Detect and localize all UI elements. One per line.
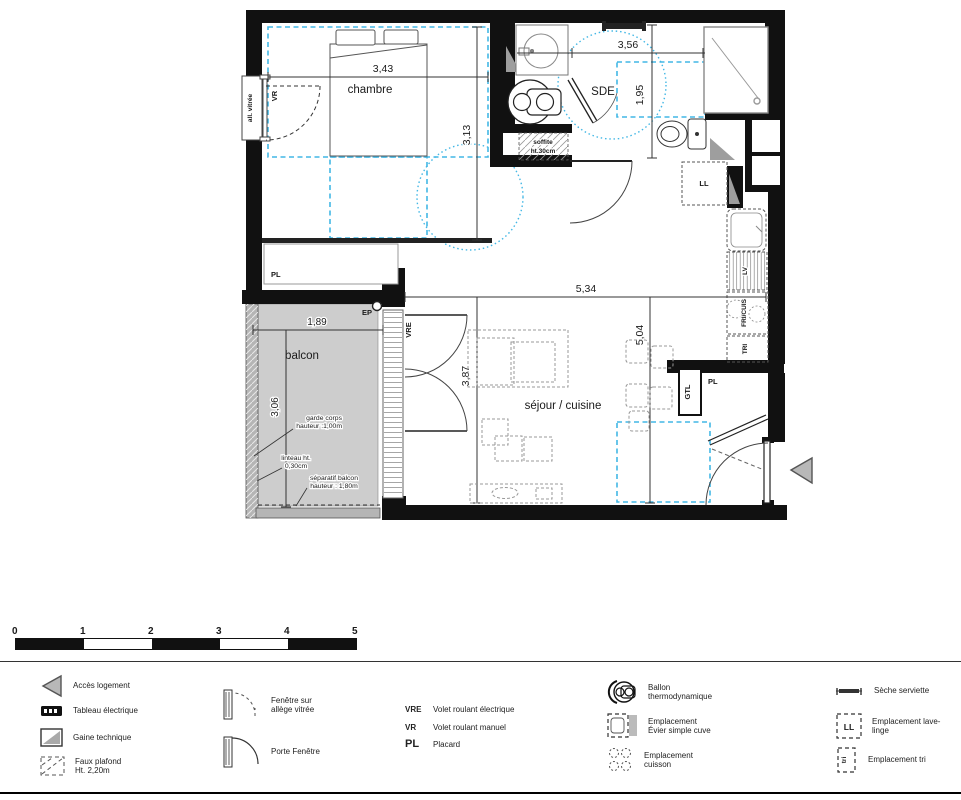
legend-ballon-label-2: thermodynamique — [648, 692, 712, 702]
sejour-label: séjour / cuisine — [525, 400, 602, 412]
legend-item-tableau: Tableau électrique — [40, 703, 138, 719]
legend-faux-plafond-label-1: Faux plafond — [75, 757, 121, 767]
shower — [704, 27, 768, 113]
fri-cuis-label: FRI/CUIS — [741, 298, 748, 326]
gtl-box: GTL — [679, 369, 701, 415]
dim-chambre-width: 3,43 — [373, 63, 394, 75]
tri-label: TRI — [742, 344, 749, 355]
legend-acces-label: Accès logement — [73, 681, 130, 690]
dim-sejour-width: 5,34 — [576, 283, 597, 295]
legend-gaine-label: Gaine technique — [73, 733, 131, 742]
legend-cuisson-label-2: cuisson — [644, 760, 693, 770]
dim-sde-height: 1,95 — [634, 85, 646, 106]
scale-tick-3: 3 — [216, 626, 222, 637]
entry-door — [706, 415, 770, 505]
dim-sde-width: 3,56 — [618, 39, 639, 51]
balcon-label: balcon — [285, 350, 319, 362]
sde-label: SDE — [591, 86, 615, 98]
dim-lines-sejour — [405, 292, 766, 503]
legend-item-faux-plafond: Faux plafond Ht. 2,20m — [40, 755, 121, 777]
legend-fenetre-label-2: allège vitrée — [271, 705, 314, 715]
legend-item-vr: VR Volet roulant manuel — [405, 723, 506, 732]
vre-label: VRE — [404, 322, 413, 337]
scale-tick-0: 0 — [12, 626, 18, 637]
seche-serviette-icon — [835, 684, 865, 698]
legend-vre-def: Volet roulant électrique — [433, 705, 514, 714]
legend-vr-def: Volet roulant manuel — [433, 723, 506, 732]
scale-tick-5: 5 — [352, 626, 358, 637]
linteau-label-1: linteau ht. — [281, 455, 311, 462]
pl-chambre-label: PL — [271, 270, 281, 279]
legend-item-seche: Sèche serviette — [835, 684, 929, 698]
separatif-label-2: hauteur : 1,80m — [310, 483, 358, 490]
placard-chambre — [264, 244, 398, 284]
scale-bar: 0 1 2 3 4 5 — [15, 626, 356, 652]
vre-window — [383, 310, 467, 498]
legend-lave-linge-label-1: Emplacement lave- — [872, 717, 940, 727]
dim-sejour-height: 5,04 — [634, 325, 646, 346]
scale-tick-2: 2 — [148, 626, 154, 637]
allege-vitree-label: all. vitrée — [247, 94, 254, 123]
evier-icon — [607, 712, 639, 740]
legend-item-pl: PL Placard — [405, 738, 460, 750]
pl-entree-label: PL — [708, 377, 718, 386]
legend-fenetre-label-1: Fenêtre sur — [271, 696, 314, 706]
legend-ballon-label-1: Ballon — [648, 683, 712, 693]
legend-seche-label: Sèche serviette — [874, 686, 929, 695]
legend-vr-abbr: VR — [405, 723, 433, 732]
floor-plan-drawing: all. vitrée VR chambre 3,43 3,13 PL — [0, 0, 961, 620]
legend-item-acces: Accès logement — [40, 673, 130, 699]
cuisson-icon — [607, 746, 635, 774]
legend-evier-label-1: Emplacement — [648, 717, 711, 727]
porte-fenetre-icon — [222, 735, 262, 769]
tri-icon-label: tri — [841, 757, 848, 764]
gtl-label: GTL — [683, 384, 692, 399]
legend-item-ballon: Ballon thermodynamique — [607, 678, 712, 706]
chambre-door — [570, 161, 632, 223]
tri-zone: TRI — [727, 336, 768, 362]
sejour-furniture — [468, 330, 673, 503]
tri-icon: tri — [835, 746, 859, 774]
toilet — [657, 119, 706, 149]
soffite-label-2: ht.30cm — [531, 148, 556, 155]
floor-plan-page: all. vitrée VR chambre 3,43 3,13 PL — [0, 0, 961, 800]
lv-label: LV — [742, 266, 749, 274]
vr-label: VR — [270, 90, 279, 101]
separatif-label-1: séparatif balcon — [310, 475, 358, 482]
legend-evier-label-2: Évier simple cuve — [648, 726, 711, 736]
ll-label: LL — [699, 179, 709, 188]
legend-tableau-label: Tableau électrique — [73, 706, 138, 715]
scale-bar-segments — [15, 638, 357, 650]
tableau-electrique-icon — [40, 703, 64, 719]
soffite-label-1: soffite — [533, 139, 553, 146]
sde-door — [568, 78, 617, 123]
page-bottom-border — [0, 792, 961, 794]
ballon-thermodynamique — [508, 80, 561, 124]
legend-item-cuisson: Emplacement cuisson — [607, 746, 693, 774]
linteau-label-2: 0,30cm — [285, 463, 308, 470]
washbasin-counter — [516, 25, 568, 75]
legend-vre-abbr: VRE — [405, 705, 433, 714]
gaine-technique-icon — [40, 728, 64, 748]
legend-cuisson-label-1: Emplacement — [644, 751, 693, 761]
legend-separator — [0, 661, 961, 662]
scale-tick-4: 4 — [284, 626, 290, 637]
legend-item-tri: tri Emplacement tri — [835, 746, 926, 774]
faux-plafond-icon — [40, 755, 66, 777]
dim-chambre-height: 3,13 — [461, 125, 473, 146]
legend-pl-abbr: PL — [405, 738, 433, 750]
garde-corps-label-2: hauteur :1,00m — [296, 423, 342, 430]
dishwasher-zone: LV — [727, 252, 767, 290]
legend-item-vre: VRE Volet roulant électrique — [405, 705, 514, 714]
dim-sejour-height2: 3,87 — [460, 366, 472, 387]
legend-item-evier: Emplacement Évier simple cuve — [607, 712, 711, 740]
dim-balcon-height: 3,06 — [270, 397, 281, 417]
cooking-zone: FRI/CUIS — [727, 292, 768, 334]
legend-item-fenetre: Fenêtre sur allège vitrée — [222, 688, 314, 722]
soffite: soffite ht.30cm — [519, 133, 568, 160]
ep-label: EP — [362, 308, 372, 317]
window-allege-vitree: all. vitrée — [242, 75, 270, 141]
acces-logement-icon — [40, 673, 64, 699]
garde-corps-label-1: garde corps — [306, 415, 342, 422]
legend-pl-def: Placard — [433, 740, 460, 749]
legend-item-porte-fenetre: Porte Fenêtre — [222, 735, 320, 769]
legend-item-lave-linge: LL Emplacement lave- linge — [835, 712, 940, 740]
kitchen-sink-zone — [727, 209, 766, 251]
legend-porte-fenetre-label: Porte Fenêtre — [271, 747, 320, 756]
legend-lave-linge-label-2: linge — [872, 726, 940, 736]
lave-linge-icon-label: LL — [844, 722, 854, 732]
ballon-thermodynamique-icon — [607, 678, 639, 706]
chambre-label: chambre — [348, 84, 393, 96]
legend-tri-label: Emplacement tri — [868, 755, 926, 764]
legend-item-gaine: Gaine technique — [40, 728, 131, 748]
dim-balcon-width: 1,89 — [307, 317, 327, 328]
fenetre-allege-icon — [222, 688, 262, 722]
lave-linge-icon: LL — [835, 712, 863, 740]
acces-logement-arrow — [791, 458, 812, 483]
scale-tick-1: 1 — [80, 626, 86, 637]
legend-faux-plafond-label-2: Ht. 2,20m — [75, 766, 121, 776]
